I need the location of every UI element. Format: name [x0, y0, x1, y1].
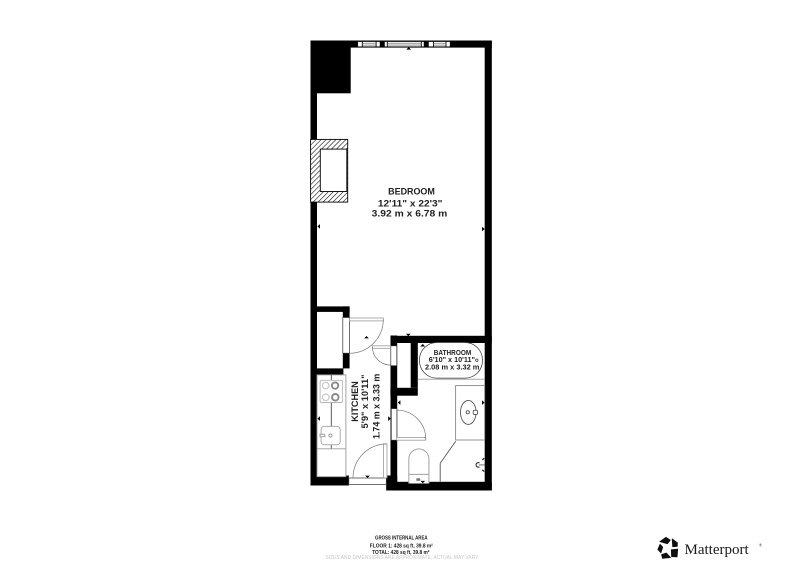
- svg-text:®: ®: [759, 543, 763, 548]
- svg-text:5'9" x 10'11": 5'9" x 10'11": [360, 374, 370, 428]
- svg-text:BATHROOM: BATHROOM: [434, 350, 472, 357]
- svg-text:6'10" x 10'11": 6'10" x 10'11": [429, 357, 475, 364]
- svg-text:BEDROOM: BEDROOM: [388, 186, 435, 196]
- svg-text:Matterport: Matterport: [685, 542, 750, 558]
- svg-text:1.74 m x 3.33 m: 1.74 m x 3.33 m: [371, 374, 381, 439]
- svg-text:FLOOR 1: 428 sq ft, 39.8 m²: FLOOR 1: 428 sq ft, 39.8 m²: [370, 544, 433, 550]
- svg-text:KITCHEN: KITCHEN: [350, 381, 360, 422]
- svg-text:GROSS INTERNAL AREA: GROSS INTERNAL AREA: [375, 536, 428, 542]
- svg-text:2.08 m x 3.32 m: 2.08 m x 3.32 m: [425, 364, 479, 371]
- svg-text:SIZES AND DIMENSIONS ARE APPRO: SIZES AND DIMENSIONS ARE APPROXIMATE, AC…: [326, 555, 479, 561]
- svg-text:3.92 m x 6.78 m: 3.92 m x 6.78 m: [372, 208, 448, 218]
- svg-text:12'11" x 22'3": 12'11" x 22'3": [378, 199, 443, 209]
